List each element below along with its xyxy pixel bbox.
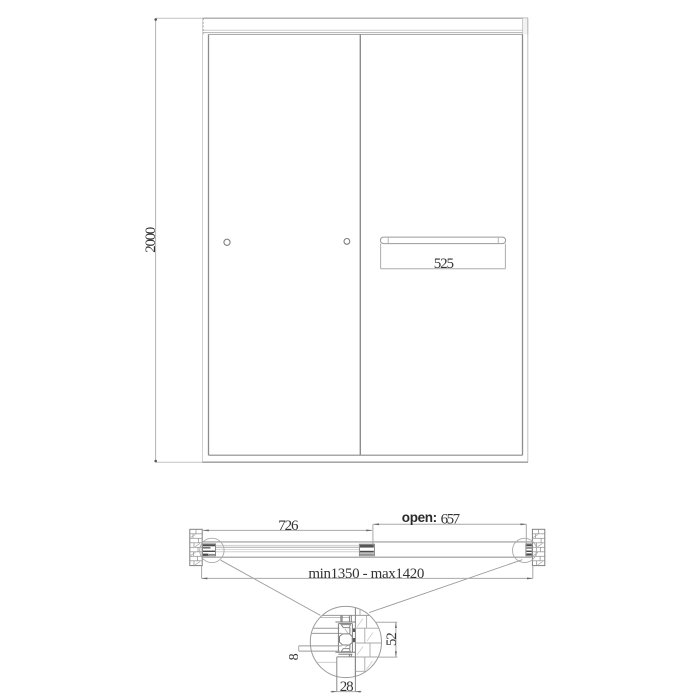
svg-text:2000: 2000 bbox=[143, 227, 159, 252]
svg-text:52: 52 bbox=[384, 633, 400, 646]
svg-text:657: 657 bbox=[441, 512, 461, 528]
svg-text:min1350 - max1420: min1350 - max1420 bbox=[308, 566, 424, 582]
svg-text:8: 8 bbox=[287, 653, 302, 660]
svg-text:28: 28 bbox=[340, 679, 353, 695]
svg-text:525: 525 bbox=[434, 256, 454, 272]
svg-text:open:: open: bbox=[402, 510, 437, 525]
svg-text:726: 726 bbox=[278, 518, 299, 534]
